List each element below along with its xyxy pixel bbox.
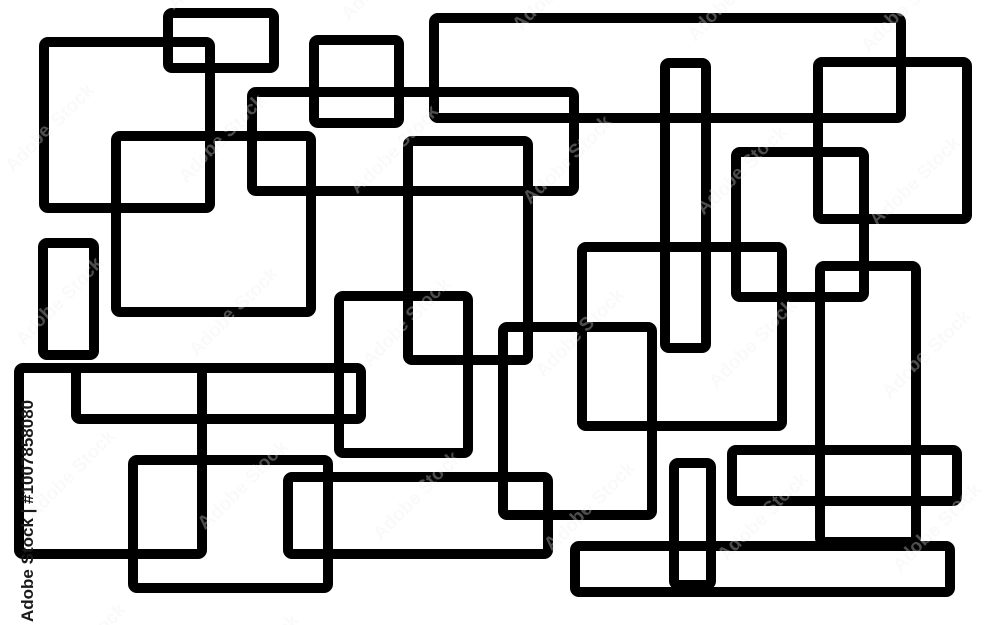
svg-text:Adobe Stock: Adobe Stock [0,0,86,4]
svg-text:Adobe Stock: Adobe Stock [204,610,301,625]
svg-text:Adobe Stock: Adobe Stock [194,437,291,534]
svg-text:Adobe Stock: Adobe Stock [540,458,637,555]
svg-text:Adobe Stock: Adobe Stock [887,479,984,576]
svg-text:Adobe Stock | #1007858080: Adobe Stock | #1007858080 [18,400,37,622]
svg-text:Adobe Stock: Adobe Stock [367,447,464,544]
svg-text:Adobe Stock: Adobe Stock [31,599,128,625]
svg-text:Adobe Stock: Adobe Stock [876,306,973,403]
svg-text:Adobe Stock: Adobe Stock [335,0,432,25]
svg-text:Adobe Stock: Adobe Stock [0,0,88,4]
